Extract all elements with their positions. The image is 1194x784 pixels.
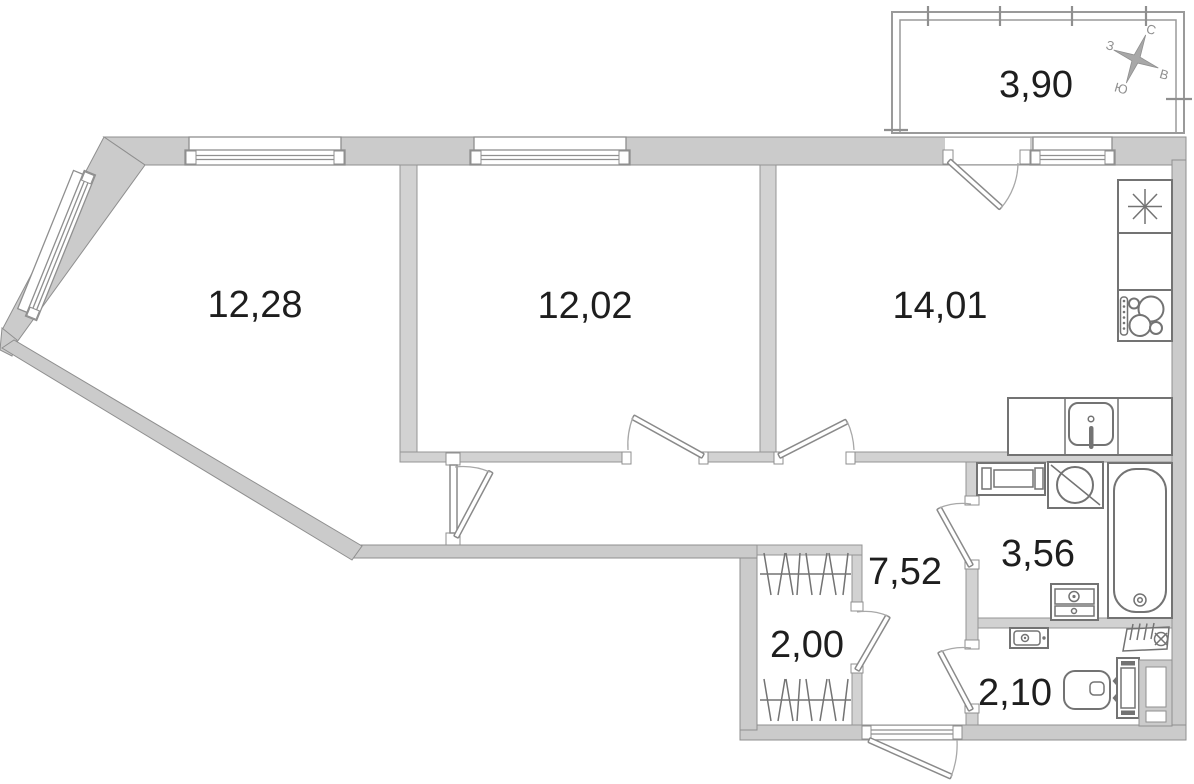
kitchen-area-label: 14,01 <box>892 285 987 327</box>
entrance-door <box>862 726 962 779</box>
closet-area-label: 2,00 <box>770 624 844 666</box>
wall-bedroom-kitchen <box>760 165 776 455</box>
bathtub-icon <box>1108 463 1172 618</box>
wc-sink-icon <box>1010 628 1048 648</box>
wc-door <box>938 640 979 713</box>
bedroom-area-label: 12,02 <box>537 285 632 327</box>
wall-living-bedroom <box>400 165 417 455</box>
wall-closet-right <box>852 555 862 607</box>
corridor-bottom-wall <box>352 545 757 558</box>
compass-star <box>1114 35 1159 83</box>
balcony-door <box>943 138 1030 210</box>
compass-south-label: Ю <box>1113 79 1130 97</box>
window-kitchen-balcony <box>1030 137 1115 165</box>
kitchen-sink-icon <box>1008 398 1172 455</box>
stove-icon <box>1118 290 1172 341</box>
duct-shaft <box>1139 660 1172 726</box>
compass: С З В Ю <box>1104 21 1170 98</box>
bedroom-door <box>622 415 708 464</box>
hallway-area-label: 7,52 <box>868 551 942 593</box>
closet-left-wall <box>740 552 757 730</box>
wall-rooms-corridor <box>706 452 776 462</box>
vanity-icon <box>1051 584 1098 620</box>
kitchen-door <box>774 419 855 464</box>
wall-rooms-corridor <box>400 452 628 462</box>
kitchen-fixtures <box>1008 180 1172 455</box>
compass-west-label: З <box>1104 37 1116 54</box>
bottom-wall <box>740 725 1186 740</box>
kitchen-counter <box>1118 233 1172 290</box>
fridge-icon <box>1118 180 1172 233</box>
floor-plan: С З В Ю 12,28 12,02 14,01 3,90 7,52 3,56… <box>0 0 1194 784</box>
bathroom-area-label: 3,56 <box>1001 533 1075 575</box>
right-wall <box>1172 160 1186 730</box>
window-bedroom <box>470 137 630 165</box>
window-living <box>185 137 345 165</box>
shelf-icon <box>977 463 1045 495</box>
balcony-area-label: 3,90 <box>999 64 1073 106</box>
closet-door <box>851 602 890 673</box>
wall-hall-bathroom <box>966 565 978 645</box>
wall-closet-top <box>757 545 862 555</box>
lower-diagonal-wall <box>2 340 362 560</box>
compass-east-label: В <box>1158 66 1170 83</box>
washing-machine-icon <box>1048 462 1103 508</box>
toilet-icon <box>1064 658 1139 718</box>
wall-closet-right <box>852 667 862 725</box>
living-room-door <box>446 453 493 545</box>
wc-area-label: 2,10 <box>978 672 1052 714</box>
living-room-area-label: 12,28 <box>207 284 302 326</box>
bathroom-door <box>937 496 979 569</box>
